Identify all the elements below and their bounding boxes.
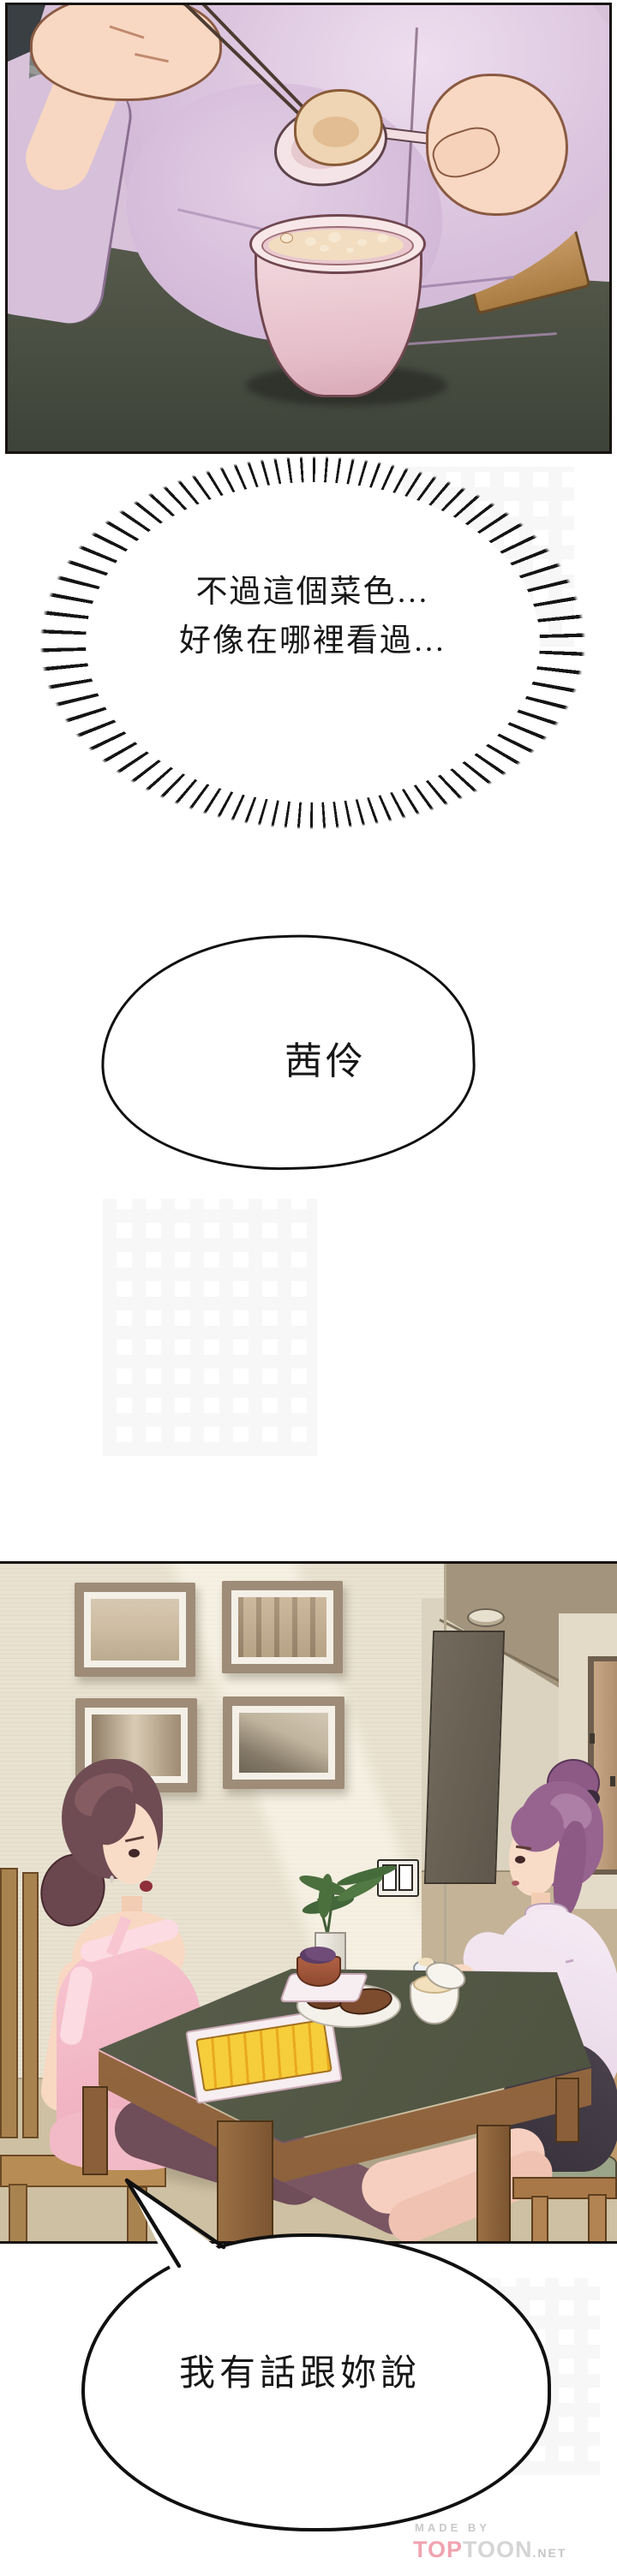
faint-qr-watermark	[103, 1199, 317, 1456]
left-chair-post	[22, 1872, 39, 2138]
burst-bubble-text: 不過這個菜色… 好像在哪裡看過…	[99, 544, 527, 689]
forest-photo	[238, 1597, 326, 1657]
burst-line-2: 好像在哪裡看過…	[179, 617, 446, 665]
left-woman-mouth	[140, 1881, 153, 1892]
picture-frame-railway	[75, 1583, 195, 1677]
table-leg-front	[217, 2120, 273, 2244]
left-woman-earring	[110, 1875, 114, 1883]
picture-mat	[84, 1592, 186, 1667]
picture-mat	[232, 1706, 335, 1780]
picture-frame-mountain	[223, 1696, 344, 1789]
picture-frame-forest	[222, 1581, 343, 1673]
berries	[300, 1947, 336, 1964]
porridge-bubble	[280, 233, 293, 243]
right-woman-mouth	[512, 1881, 519, 1886]
picture-mat	[231, 1590, 333, 1664]
table-leg	[82, 2086, 108, 2175]
watermark-brand-toon: TOON	[463, 2537, 533, 2562]
burst-line-1: 不過這個菜色…	[196, 568, 430, 617]
watermark-made-by: MADE BY	[415, 2521, 490, 2534]
door-hinge	[610, 1776, 615, 1786]
mountain-photo	[239, 1713, 328, 1773]
left-chair-leg	[127, 2186, 147, 2244]
watermark-brand: TOPTOON.NET	[413, 2537, 566, 2563]
dark-door	[424, 1631, 505, 1884]
right-woman-eye	[515, 1856, 525, 1863]
left-hand-fist	[30, 3, 222, 101]
speech-bubble-text: 我有話跟妳說	[111, 2340, 488, 2400]
switch-rocker	[398, 1864, 413, 1891]
left-chair-post	[0, 1868, 18, 2138]
railway-photo	[91, 1599, 179, 1661]
watermark-brand-net: .NET	[533, 2546, 567, 2560]
name-bubble-text: 茜伶	[257, 1028, 394, 1088]
food-ball-shade	[313, 116, 359, 147]
left-woman-eye	[129, 1849, 140, 1857]
left-chair-leg	[9, 2184, 27, 2244]
panel-dining-scene	[0, 1561, 617, 2244]
panel-spoon-closeup	[5, 3, 612, 454]
table-leg	[555, 2078, 579, 2143]
right-chair-leg	[531, 2196, 548, 2244]
webtoon-page: 不過這個菜色… 好像在哪裡看過… 茜伶	[0, 0, 617, 2576]
door-hinge	[590, 1733, 595, 1744]
ceiling-light-icon	[467, 1608, 505, 1627]
table-leg	[476, 2125, 511, 2244]
right-chair-leg	[588, 2194, 607, 2244]
watermark-brand-top: TOP	[413, 2537, 463, 2562]
